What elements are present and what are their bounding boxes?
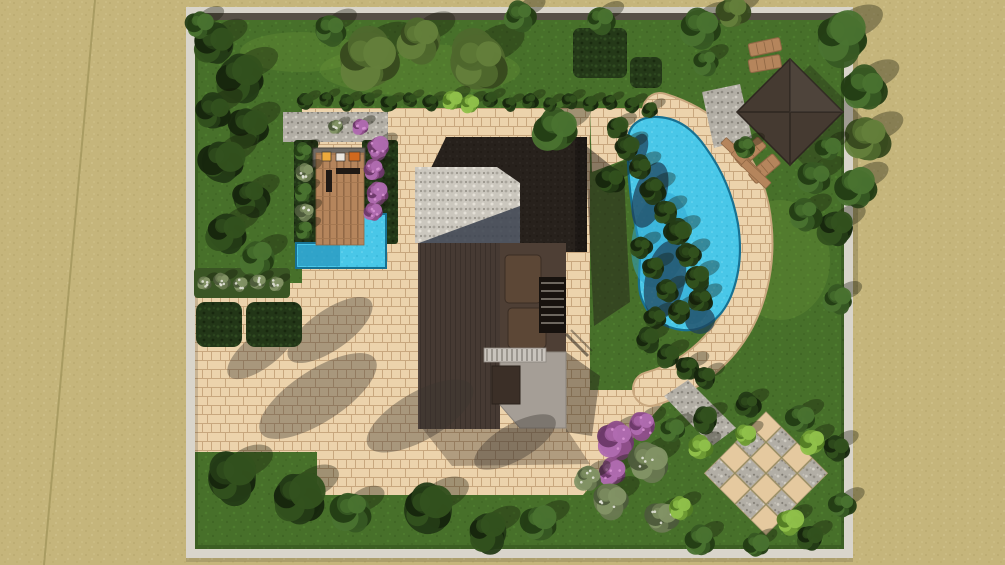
site-plan-render xyxy=(0,0,1005,565)
aerial-site-plan xyxy=(0,0,1005,565)
